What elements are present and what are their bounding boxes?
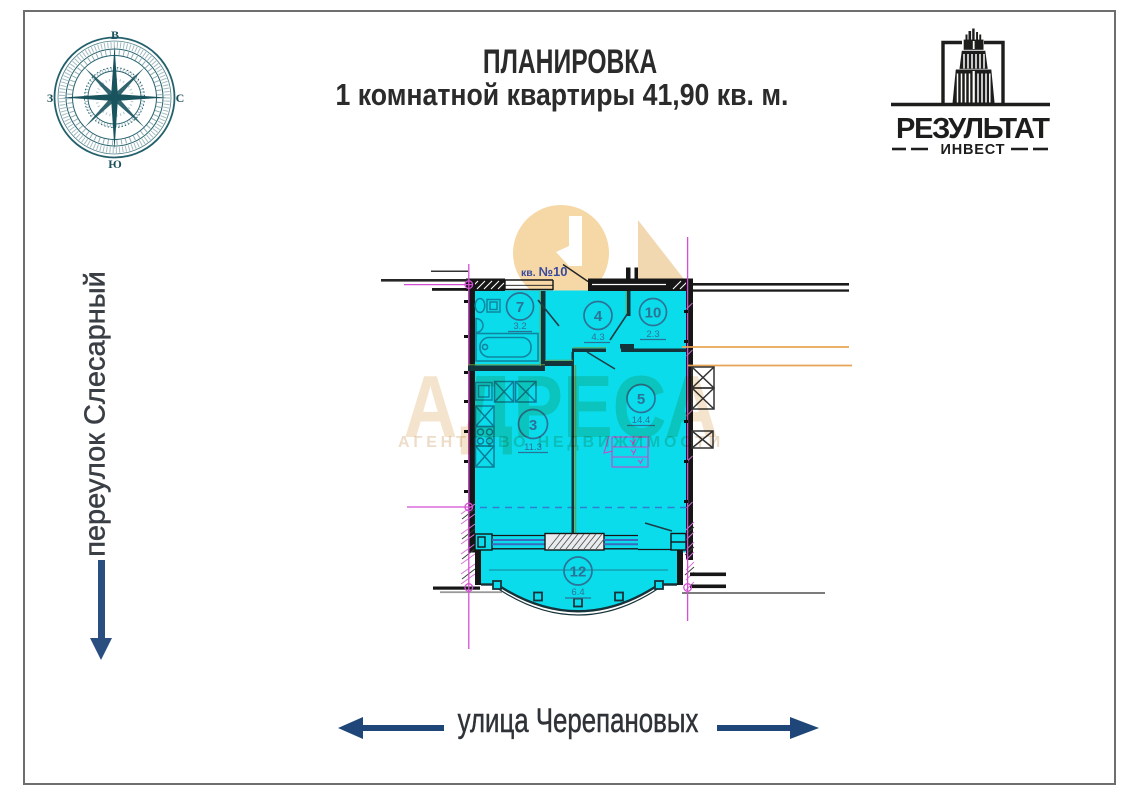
svg-text:12: 12 [570,564,587,581]
svg-text:7: 7 [516,299,524,316]
svg-text:10: 10 [645,305,662,322]
svg-text:4: 4 [594,308,603,325]
svg-text:2.3: 2.3 [646,329,659,340]
svg-text:кв. №10: кв. №10 [521,264,568,279]
svg-text:4.3: 4.3 [591,332,604,343]
svg-text:6.4: 6.4 [571,587,584,598]
svg-text:3.2: 3.2 [513,321,526,332]
